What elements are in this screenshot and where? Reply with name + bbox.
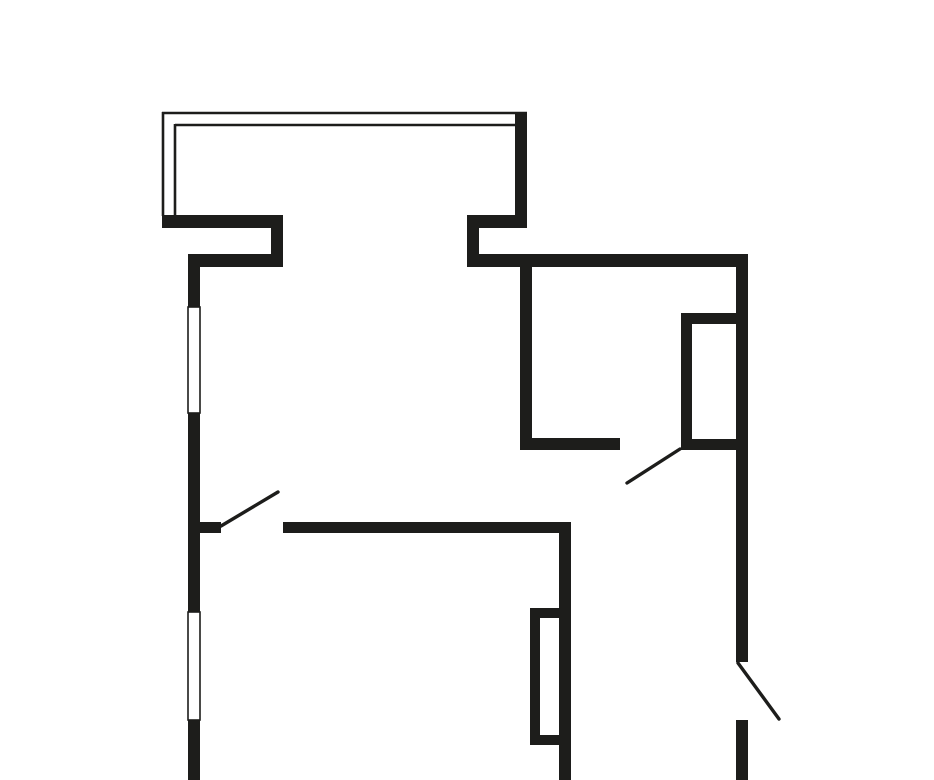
right-wall-lower xyxy=(736,720,748,780)
floor-plan xyxy=(0,0,934,780)
top-wall-left xyxy=(188,254,283,267)
hall-wall-stub xyxy=(188,522,221,533)
window-bedroom xyxy=(188,612,200,720)
kitchen-shaft-bottom xyxy=(681,439,748,450)
balcony-parapet-left xyxy=(162,215,283,228)
kitchen-left-wall xyxy=(520,267,532,450)
door-leaf-entrance xyxy=(738,663,779,719)
hall-wall xyxy=(283,522,568,533)
door-leaf-room xyxy=(221,492,278,526)
left-wall-upper xyxy=(188,254,200,307)
bedroom-right-wall xyxy=(559,522,571,780)
kitchen-bottom-wall xyxy=(520,438,620,450)
left-wall-middle xyxy=(188,413,200,612)
left-wall-lower xyxy=(188,720,200,780)
top-wall-right xyxy=(467,254,748,267)
bedroom-shaft-bottom xyxy=(530,735,560,745)
bedroom-shaft-top xyxy=(530,608,560,618)
balcony-right-wall xyxy=(515,114,527,228)
kitchen-shaft-left xyxy=(681,313,692,450)
door-leaf-kitchen xyxy=(627,449,680,483)
floor-plan-canvas xyxy=(0,0,934,780)
bedroom-shaft-left xyxy=(530,608,540,745)
kitchen-shaft-top xyxy=(681,313,748,324)
window-living-room xyxy=(188,307,200,413)
